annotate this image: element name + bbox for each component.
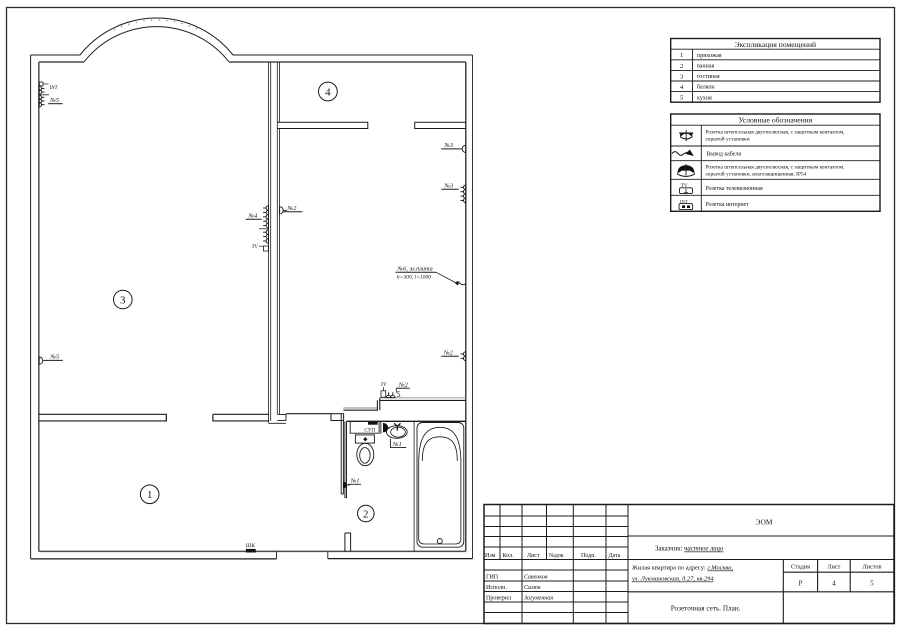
svg-text:№5: №5 (49, 97, 59, 104)
svg-text:5: 5 (870, 581, 874, 588)
svg-text:Жилая квартира по адресу: г.Мо: Жилая квартира по адресу: г.Москва, (632, 565, 733, 572)
svg-text:СУП: СУП (364, 427, 375, 433)
svg-text:Листов: Листов (863, 564, 882, 571)
svg-text:2: 2 (363, 509, 368, 520)
svg-text:4: 4 (832, 581, 836, 588)
svg-text:4: 4 (325, 87, 331, 99)
svg-text:Р: Р (799, 581, 803, 588)
svg-text:ванная: ванная (697, 64, 715, 70)
svg-text:прихожая: прихожая (697, 53, 722, 59)
svg-text:Заказчик: частное лицо: Заказчик: частное лицо (655, 546, 724, 553)
svg-text:№3: №3 (443, 142, 453, 149)
svg-text:№2: №2 (286, 205, 296, 212)
svg-text:гостиная: гостиная (697, 74, 720, 80)
svg-text:№1: №1 (350, 478, 360, 485)
svg-text:5: 5 (397, 390, 401, 399)
svg-text:Салюк: Салюк (524, 585, 541, 591)
svg-text:№2: №2 (443, 350, 453, 357)
svg-text:№2: №2 (398, 382, 408, 389)
svg-text:1: 1 (680, 52, 683, 59)
svg-text:скрытой установки, влагозащище: скрытой установки, влагозащищенная, IP54 (706, 170, 807, 177)
svg-text:ул. Лукмановская, д.27, кв.294: ул. Лукмановская, д.27, кв.294 (631, 576, 714, 583)
svg-text:TV: TV (381, 383, 388, 388)
svg-text:ШК: ШК (246, 543, 255, 549)
svg-text:Розетка телевизионная: Розетка телевизионная (706, 186, 763, 192)
svg-text:Условные обозначения: Условные обозначения (738, 115, 812, 124)
svg-text:Розеточная сеть. План.: Розеточная сеть. План. (671, 605, 741, 613)
svg-text:3: 3 (120, 295, 126, 307)
svg-text:Розетка интернет: Розетка интернет (706, 202, 750, 208)
svg-text:Стадия: Стадия (791, 564, 810, 571)
svg-text:№4: №4 (247, 213, 257, 220)
svg-text:2: 2 (680, 63, 683, 70)
svg-text:Савенков: Савенков (524, 575, 548, 581)
svg-text:№3: №3 (443, 183, 453, 190)
svg-text:№6, эл.плита: №6, эл.плита (396, 265, 432, 272)
svg-text:кухня: кухня (697, 95, 712, 101)
svg-text:Вывод кабеля: Вывод кабеля (707, 150, 742, 157)
svg-text:скрытой установки: скрытой установки (706, 135, 750, 142)
svg-text:Загуменная: Загуменная (524, 596, 553, 602)
svg-text:1: 1 (147, 489, 153, 501)
svg-text:Дата: Дата (609, 553, 621, 559)
svg-text:балкон: балкон (697, 84, 715, 91)
svg-text:INT: INT (49, 86, 59, 91)
svg-text:Лист: Лист (527, 553, 540, 559)
svg-text:Подп.: Подп. (581, 553, 596, 559)
svg-text:Экспликация помещений: Экспликация помещений (735, 40, 817, 49)
svg-text:ГИП: ГИП (486, 575, 499, 581)
svg-text:Кол.: Кол. (503, 553, 515, 559)
svg-text:TV: TV (252, 245, 259, 250)
svg-text:INT: INT (680, 199, 688, 204)
svg-text:ЭОМ: ЭОМ (756, 518, 773, 527)
svg-text:Изм: Изм (485, 553, 496, 559)
svg-text:№5: №5 (49, 354, 59, 361)
svg-text:Розетка штепсельная двухполюсн: Розетка штепсельная двухполюсная, с защи… (706, 165, 846, 171)
svg-text:Лист: Лист (827, 564, 840, 571)
svg-text:Проверил: Проверил (486, 596, 511, 602)
svg-text:Розетка штепсельная двухполюсн: Розетка штепсельная двухполюсная, с защи… (706, 130, 846, 136)
svg-text:Исполн.: Исполн. (486, 585, 507, 591)
svg-text:№док: №док (549, 553, 564, 559)
svg-text:h=300, l=1000: h=300, l=1000 (397, 274, 431, 280)
svg-text:№1: №1 (392, 441, 402, 448)
